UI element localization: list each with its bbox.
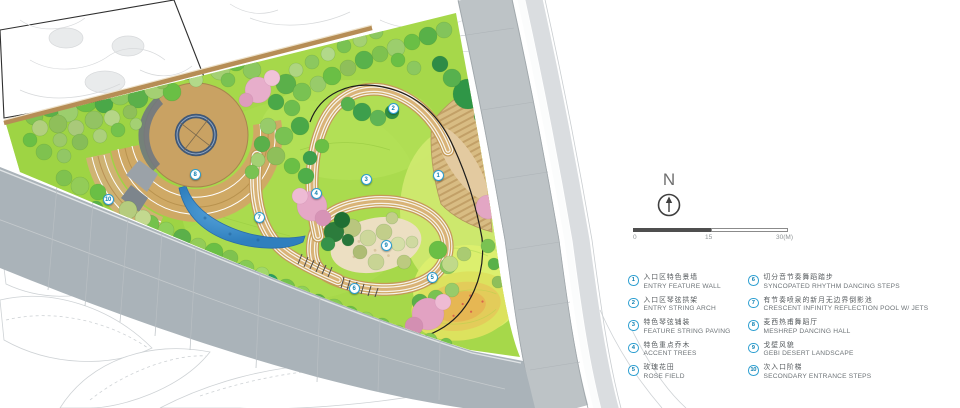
- legend-item-6: 6切分音节奏舞蹈踏步SYNCOPATED RHYTHM DANCING STEP…: [748, 274, 948, 291]
- legend-label-zh: 玫瑰花田: [644, 364, 685, 373]
- legend-item-number: 7: [748, 298, 759, 309]
- legend-label-zh: 次入口阶梯: [764, 364, 872, 373]
- legend-label-zh: 麦西热甫舞蹈厅: [764, 319, 851, 328]
- legend-item-5: 5玫瑰花田ROSE FIELD: [628, 364, 748, 381]
- plan-callout-3: 3: [361, 174, 372, 185]
- legend-label-en: GEBI DESERT LANDSCAPE: [764, 350, 854, 359]
- legend-item-number: 5: [628, 365, 639, 376]
- legend-label-en: SYNCOPATED RHYTHM DANCING STEPS: [764, 283, 900, 292]
- legend-label-en: ROSE FIELD: [644, 373, 685, 382]
- legend-label-zh: 入口区特色景墙: [644, 274, 721, 283]
- legend-label-en: ENTRY FEATURE WALL: [644, 283, 721, 292]
- legend-item-number: 2: [628, 298, 639, 309]
- plan-callout-8: 8: [190, 169, 201, 180]
- legend-item-10: 10次入口阶梯SECONDARY ENTRANCE STEPS: [748, 364, 948, 381]
- north-arrow-icon: [652, 191, 686, 221]
- plan-callout-4: 4: [311, 188, 322, 199]
- legend-item-2: 2入口区琴弦拱架ENTRY STRING ARCH: [628, 297, 748, 314]
- legend-label-zh: 戈壁风貌: [764, 342, 854, 351]
- legend-label-en: ACCENT TREES: [644, 350, 697, 359]
- legend-item-number: 9: [748, 343, 759, 354]
- plan-callout-6: 6: [349, 283, 360, 294]
- legend-item-number: 3: [628, 320, 639, 331]
- legend: 1入口区特色景墙ENTRY FEATURE WALL2入口区琴弦拱架ENTRY …: [628, 274, 948, 387]
- legend-label-zh: 特色琴弦铺装: [644, 319, 731, 328]
- plan-callout-9: 9: [381, 240, 392, 251]
- legend-label-zh: 有节奏喷泉的新月无边界倒影池: [764, 297, 929, 306]
- plan-callout-5: 5: [427, 272, 438, 283]
- north-arrow: N: [652, 170, 686, 226]
- legend-item-number: 10: [748, 365, 759, 376]
- scale-bar: 0 15 30(M): [633, 228, 789, 244]
- legend-item-1: 1入口区特色景墙ENTRY FEATURE WALL: [628, 274, 748, 291]
- legend-item-4: 4特色重点乔木ACCENT TREES: [628, 342, 748, 359]
- legend-item-number: 8: [748, 320, 759, 331]
- plan-callout-10: 10: [103, 194, 114, 205]
- legend-item-8: 8麦西热甫舞蹈厅MESHREP DANCING HALL: [748, 319, 948, 336]
- masterplan-sheet: 12345678910 N 0 15 30(M) 1入口区特色景墙ENTRY F…: [0, 0, 960, 408]
- scale-label-mid: 15: [705, 234, 712, 241]
- legend-item-number: 6: [748, 275, 759, 286]
- plan-callouts: 12345678910: [0, 0, 720, 408]
- legend-label-en: MESHREP DANCING HALL: [764, 328, 851, 337]
- legend-label-zh: 切分音节奏舞蹈踏步: [764, 274, 900, 283]
- legend-column-2: 6切分音节奏舞蹈踏步SYNCOPATED RHYTHM DANCING STEP…: [748, 274, 948, 387]
- legend-item-number: 1: [628, 275, 639, 286]
- plan-callout-7: 7: [254, 212, 265, 223]
- legend-label-zh: 入口区琴弦拱架: [644, 297, 716, 306]
- legend-label-zh: 特色重点乔木: [644, 342, 697, 351]
- scale-label-end: 30(M): [776, 234, 793, 241]
- north-label: N: [652, 170, 686, 190]
- plan-callout-2: 2: [388, 103, 399, 114]
- legend-label-en: FEATURE STRING PAVING: [644, 328, 731, 337]
- legend-column-1: 1入口区特色景墙ENTRY FEATURE WALL2入口区琴弦拱架ENTRY …: [628, 274, 748, 387]
- legend-label-en: ENTRY STRING ARCH: [644, 305, 716, 314]
- plan-callout-1: 1: [433, 170, 444, 181]
- legend-item-9: 9戈壁风貌GEBI DESERT LANDSCAPE: [748, 342, 948, 359]
- scale-bar-open-segment: [711, 228, 788, 232]
- scale-bar-solid-segment: [633, 228, 711, 232]
- legend-label-en: CRESCENT INFINITY REFLECTION POOL W/ JET…: [764, 305, 929, 314]
- legend-item-3: 3特色琴弦铺装FEATURE STRING PAVING: [628, 319, 748, 336]
- legend-item-7: 7有节奏喷泉的新月无边界倒影池CRESCENT INFINITY REFLECT…: [748, 297, 948, 314]
- legend-label-en: SECONDARY ENTRANCE STEPS: [764, 373, 872, 382]
- scale-label-zero: 0: [633, 234, 637, 241]
- legend-item-number: 4: [628, 343, 639, 354]
